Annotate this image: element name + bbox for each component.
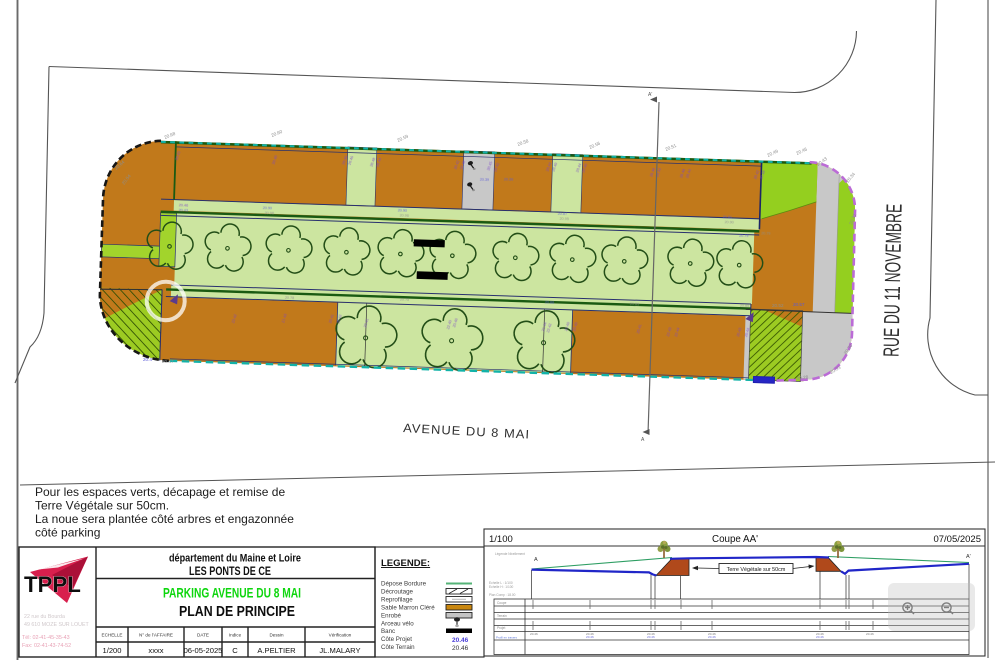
svg-text:Profil en travers: Profil en travers xyxy=(496,636,518,640)
svg-text:20.46: 20.46 xyxy=(866,632,874,636)
svg-text:20.95: 20.95 xyxy=(560,217,569,221)
svg-text:20.57: 20.57 xyxy=(793,302,805,307)
svg-text:Reprofilage: Reprofilage xyxy=(381,597,413,604)
svg-text:20.43: 20.43 xyxy=(179,208,188,212)
svg-text:Plan Comp : 18.00: Plan Comp : 18.00 xyxy=(489,593,516,597)
svg-text:Coupe AA': Coupe AA' xyxy=(712,534,758,545)
svg-text:20.49: 20.49 xyxy=(766,148,779,158)
svg-text:N° de l’AFFAIRE: N° de l’AFFAIRE xyxy=(139,633,173,638)
svg-text:20.98: 20.98 xyxy=(265,211,274,215)
svg-text:06-05-2025: 06-05-2025 xyxy=(184,646,223,655)
svg-text:20.85: 20.85 xyxy=(630,302,639,306)
svg-text:JL.MALARY: JL.MALARY xyxy=(319,646,360,655)
svg-text:20.47: 20.47 xyxy=(162,359,174,364)
svg-text:22 rue du Bourda: 22 rue du Bourda xyxy=(24,614,65,620)
svg-text:Coupe: Coupe xyxy=(497,601,507,605)
svg-text:20.59: 20.59 xyxy=(396,133,409,142)
svg-text:Projet: Projet xyxy=(497,626,505,630)
svg-text:Terre Végétale sur 50cm: Terre Végétale sur 50cm xyxy=(727,567,786,573)
svg-text:Echelle H : 1/100: Echelle H : 1/100 xyxy=(489,585,514,589)
svg-text:Tél: 02-41-45-35-43: Tél: 02-41-45-35-43 xyxy=(22,635,70,641)
svg-text:Banc: Banc xyxy=(381,628,395,635)
svg-text:Vérification: Vérification xyxy=(329,633,352,638)
svg-text:Légende Nivellement: Légende Nivellement xyxy=(495,552,525,556)
svg-text:Terrain: Terrain xyxy=(497,614,507,618)
svg-text:côté parking: côté parking xyxy=(35,526,100,540)
svg-text:20.46: 20.46 xyxy=(586,632,594,636)
svg-text:20.46: 20.46 xyxy=(647,632,655,636)
svg-text:20.39: 20.39 xyxy=(480,178,489,182)
svg-text:20.46: 20.46 xyxy=(795,146,808,156)
svg-text:ECHELLE: ECHELLE xyxy=(102,633,123,638)
svg-text:AVENUE DU 8 MAI: AVENUE DU 8 MAI xyxy=(403,421,531,442)
svg-text:20.58: 20.58 xyxy=(517,138,530,147)
svg-text:20.52: 20.52 xyxy=(772,303,784,308)
svg-text:20.46: 20.46 xyxy=(179,203,188,207)
svg-text:20.34: 20.34 xyxy=(845,171,857,183)
svg-text:20.87: 20.87 xyxy=(558,212,567,216)
svg-text:département du Maine et Loire: département du Maine et Loire xyxy=(169,553,301,565)
svg-text:1/200: 1/200 xyxy=(102,646,121,655)
svg-text:LES PONTS DE CE: LES PONTS DE CE xyxy=(189,564,271,578)
svg-text:C: C xyxy=(232,646,238,655)
svg-text:La noue sera plantée côté arbr: La noue sera plantée côté arbres et enga… xyxy=(35,512,294,526)
svg-text:1/100: 1/100 xyxy=(489,534,513,545)
svg-text:20.46: 20.46 xyxy=(816,632,824,636)
svg-text:20.90: 20.90 xyxy=(725,220,734,224)
svg-text:Côte Terrain: Côte Terrain xyxy=(381,644,415,651)
svg-text:A.PELTIER: A.PELTIER xyxy=(257,646,296,655)
svg-text:Dépose Bordure: Dépose Bordure xyxy=(381,581,427,588)
svg-text:RUE DU 11 NOVEMBRE: RUE DU 11 NOVEMBRE xyxy=(879,204,907,357)
svg-text:Enrobé: Enrobé xyxy=(381,613,402,620)
svg-text:20.60: 20.60 xyxy=(271,129,284,138)
svg-text:Sable Marron Cléré: Sable Marron Cléré xyxy=(381,605,435,612)
svg-text:Indice: Indice xyxy=(229,633,242,638)
svg-text:20.90: 20.90 xyxy=(398,208,407,212)
svg-text:20.46: 20.46 xyxy=(452,637,469,644)
svg-text:20.79: 20.79 xyxy=(739,234,748,238)
svg-text:Pour les espaces verts, décapa: Pour les espaces verts, décapage et remi… xyxy=(35,485,285,499)
svg-text:Côte Projet: Côte Projet xyxy=(381,636,412,643)
svg-text:20.46: 20.46 xyxy=(452,645,469,652)
svg-text:A: A xyxy=(641,437,645,443)
svg-text:20.79: 20.79 xyxy=(761,231,770,235)
svg-text:xxxx: xxxx xyxy=(148,646,163,655)
svg-text:07/05/2025: 07/05/2025 xyxy=(933,534,981,545)
svg-text:PARKING AVENUE DU 8 MAI: PARKING AVENUE DU 8 MAI xyxy=(163,585,301,601)
svg-text:20.78: 20.78 xyxy=(285,296,294,300)
svg-text:A': A' xyxy=(966,554,971,560)
svg-text:20.46: 20.46 xyxy=(530,632,538,636)
svg-text:LEGENDE:: LEGENDE: xyxy=(381,558,430,569)
svg-text:20.96: 20.96 xyxy=(400,213,409,217)
svg-text:20.88: 20.88 xyxy=(545,300,554,304)
svg-text:20.4: 20.4 xyxy=(143,357,152,362)
svg-text:A: A xyxy=(534,557,538,563)
svg-text:49 610 MOZE SUR LOUET: 49 610 MOZE SUR LOUET xyxy=(24,622,90,628)
svg-text:A': A' xyxy=(648,92,652,98)
svg-text:20.39: 20.39 xyxy=(504,177,513,181)
svg-text:20.85: 20.85 xyxy=(740,304,749,308)
svg-text:20.90: 20.90 xyxy=(263,206,272,210)
svg-text:DATE: DATE xyxy=(197,633,209,638)
svg-text:Arceau vélo: Arceau vélo xyxy=(381,621,414,628)
svg-text:20.81: 20.81 xyxy=(723,215,732,219)
svg-text:Dessin: Dessin xyxy=(269,633,283,638)
svg-text:Fax: 02-41-43-74-52: Fax: 02-41-43-74-52 xyxy=(22,643,71,649)
svg-text:PLAN DE PRINCIPE: PLAN DE PRINCIPE xyxy=(179,604,295,620)
svg-text:Décroutage: Décroutage xyxy=(381,589,414,596)
svg-text:20.51: 20.51 xyxy=(665,143,678,152)
svg-text:20.56: 20.56 xyxy=(588,140,601,149)
svg-text:20.68: 20.68 xyxy=(164,131,177,140)
svg-text:20.75: 20.75 xyxy=(400,298,409,302)
svg-text:20.46: 20.46 xyxy=(708,632,716,636)
svg-text:TPPL: TPPL xyxy=(24,572,81,597)
svg-text:Terre Végétale sur 50cm.: Terre Végétale sur 50cm. xyxy=(35,499,169,513)
